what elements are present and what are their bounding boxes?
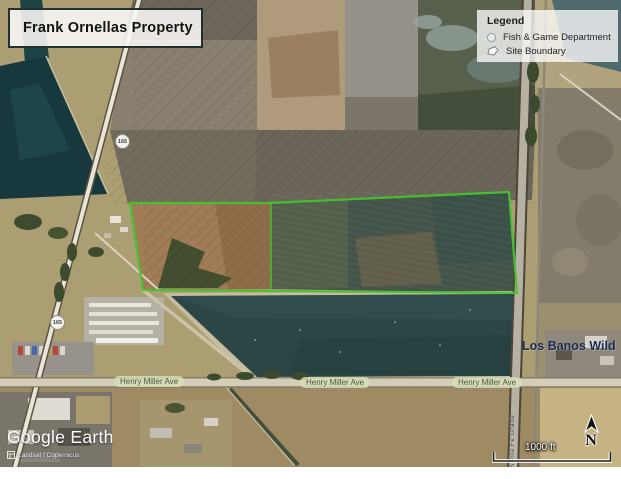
route-shield-number: 165 (118, 139, 127, 145)
legend-item-fish-game: Fish & Game Department (487, 30, 618, 44)
scale-bar-icon (492, 450, 612, 463)
google-earth-logo: Google Earth (7, 427, 114, 448)
map-canvas: Frank Ornellas Property Legend Fish & Ga… (0, 0, 621, 467)
legend-item-site-boundary: Site Boundary (487, 44, 618, 58)
east-side-terrain (535, 0, 621, 467)
satellite-imagery (0, 0, 621, 467)
legend: Legend Fish & Game Department Site Bound… (477, 10, 618, 62)
map-title: Frank Ornellas Property (23, 20, 193, 36)
branding: Google Earth Landsat / Copernicus (7, 427, 114, 459)
point-marker-icon (487, 33, 496, 42)
legend-title: Legend (487, 15, 618, 27)
site-boundary-icon (487, 46, 499, 56)
wildlife-area-label: Los Banos Wild (522, 339, 616, 353)
route-165-shield-north: 165 (115, 134, 130, 149)
map-title-box: Frank Ornellas Property (8, 8, 203, 48)
imagery-data-icon (7, 451, 15, 459)
attribution-row: Landsat / Copernicus (7, 451, 114, 459)
road-label-henry-miller-3: Henry Miller Ave (452, 377, 522, 388)
site-parcels (130, 192, 517, 293)
north-arrow: N (578, 414, 604, 448)
road-label-henry-miller-1: Henry Miller Ave (114, 376, 184, 387)
imagery-attribution: Landsat / Copernicus (18, 452, 79, 459)
legend-item-label: Fish & Game Department (503, 32, 611, 43)
route-shield-number: 165 (53, 320, 62, 326)
map-figure: Frank Ornellas Property Legend Fish & Ga… (0, 0, 621, 479)
route-165-shield-south: 165 (50, 315, 65, 330)
scale-bar: 1000 ft (492, 445, 612, 463)
north-arrow-icon (584, 414, 599, 433)
legend-item-label: Site Boundary (506, 46, 566, 57)
road-label-henry-miller-2: Henry Miller Ave (300, 377, 370, 388)
